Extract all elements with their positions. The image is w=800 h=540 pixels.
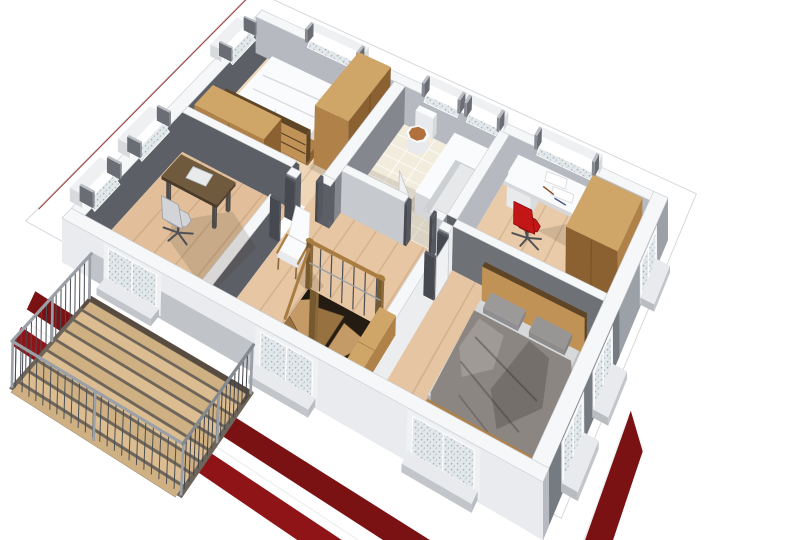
window-office2-ne-post-l-face-s [534,135,537,151]
window-bath-ne-2-post-l-face-s [464,102,467,117]
armchair-leg-wood [296,268,297,280]
window-bath-ne-1-post-r-face-s [457,99,460,114]
armchair-leg-wood [278,258,279,270]
window-bedroom1-nw-post-b-face-e [231,47,232,62]
balcony-baluster-nw [61,289,62,331]
window-bedroom1-nw-post-t-face-e [256,21,257,36]
window-office1-nw-1-post-b-face-e [140,142,142,159]
office1-door-jamb-s-face-s [269,196,280,242]
window-office1-nw-2-post-t-face-e [120,163,122,180]
balcony-baluster-nw [70,278,71,319]
window-bedroom2-sw-mullion [443,433,444,471]
bedroom2-door-jamb-s-face-s [423,253,435,301]
balcony-post [90,254,91,299]
balcony-baluster-nw [41,311,42,353]
window-office1-sw-mullion [132,262,133,294]
chair-base-leg [527,238,541,239]
chair-base-leg [178,233,193,234]
floorplan-3d-scene [0,0,800,540]
window-office1-nw-2-post-b-face-e [93,191,95,209]
balcony-post [52,296,53,342]
balcony-baluster-nw [75,273,76,314]
window-office2-ne-post-r-face-s [592,161,595,177]
balcony-baluster-nw [56,294,57,336]
balcony-post [12,339,13,387]
window-bath-ne-1-post-l-face-s [422,83,425,98]
window-bedroom1-ne-post-l-face-s [305,29,308,43]
floorplan-render-stage [0,0,800,540]
balcony-baluster-nw [46,305,47,347]
balcony-baluster-nw [36,316,37,359]
balcony-post [251,346,253,395]
window-bath-ne-2-post-r-face-s [497,117,500,132]
window-office1-nw-1-post-t-face-e [169,111,171,127]
balcony-baluster-nw [31,322,32,365]
